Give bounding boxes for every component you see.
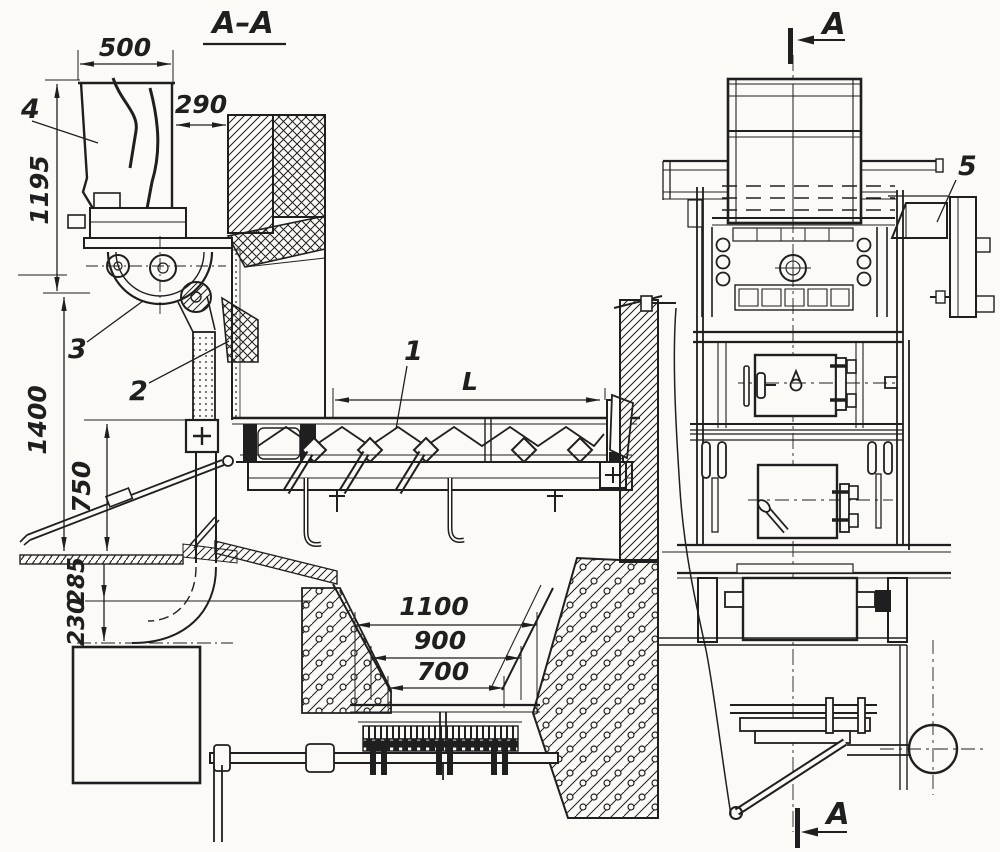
ash-discharge <box>73 567 310 783</box>
poker-rod <box>20 460 224 545</box>
label-screw-conveyor: 1 <box>404 336 423 367</box>
grate-assembly <box>210 705 558 842</box>
engineering-drawing-sheet: 500 290 1195 1400 750 <box>0 0 1000 852</box>
dim-floor-drop-lower: 230 <box>64 598 90 646</box>
dim-hopper-height: 1195 <box>25 155 54 225</box>
furnace-wall <box>533 296 676 818</box>
label-feeder: 3 <box>68 334 87 365</box>
section-title: A–A <box>210 6 273 41</box>
bearing-stack-left <box>717 239 730 286</box>
screw-conveyor <box>232 395 640 545</box>
dimension-1400: 1400 <box>18 275 67 551</box>
ash-box <box>73 647 200 783</box>
lower-door <box>748 465 893 538</box>
dim-pit-outer: 1100 <box>399 592 469 621</box>
dim-hopper-to-wall: 290 <box>175 90 227 119</box>
grate-drive <box>730 640 985 819</box>
floor-line <box>20 555 183 564</box>
upper-door <box>738 355 898 416</box>
view-title: A–A <box>203 6 286 44</box>
dimension-290: 290 <box>175 90 227 128</box>
section-marker-bottom: A <box>795 797 850 848</box>
label-drive-unit: 5 <box>958 151 977 182</box>
coal-feeder <box>68 193 232 332</box>
masonry-wall <box>222 115 325 420</box>
base-posts <box>658 578 907 790</box>
ash-pit <box>215 541 553 713</box>
marker-letter-top: A <box>820 7 845 42</box>
dim-conveyor-height: 750 <box>67 461 96 513</box>
dim-floor-drop-upper: 285 <box>64 557 90 605</box>
section-marker-top: A <box>788 7 846 64</box>
section-view: 500 290 1195 1400 750 <box>18 6 676 842</box>
dim-hopper-width: 500 <box>99 33 151 62</box>
hopper-front <box>728 79 861 223</box>
dimension-500: 500 <box>78 33 173 85</box>
dim-pit-inner: 700 <box>417 657 469 686</box>
dimension-L: L <box>333 367 605 417</box>
dim-conveyor-length: L <box>462 367 478 396</box>
down-chute <box>183 332 237 563</box>
part-callouts: 4 3 2 1 <box>20 94 423 429</box>
front-view: A A <box>658 7 994 848</box>
label-chute: 2 <box>129 376 148 407</box>
label-hopper: 4 <box>20 94 40 125</box>
marker-letter-bottom: A <box>824 797 849 832</box>
dim-feed-height: 1400 <box>23 385 52 455</box>
screw-flights <box>286 438 592 492</box>
drawing-canvas: 500 290 1195 1400 750 <box>0 0 1000 852</box>
bearing-stack-right <box>858 239 871 286</box>
dim-pit-middle: 900 <box>414 626 466 655</box>
